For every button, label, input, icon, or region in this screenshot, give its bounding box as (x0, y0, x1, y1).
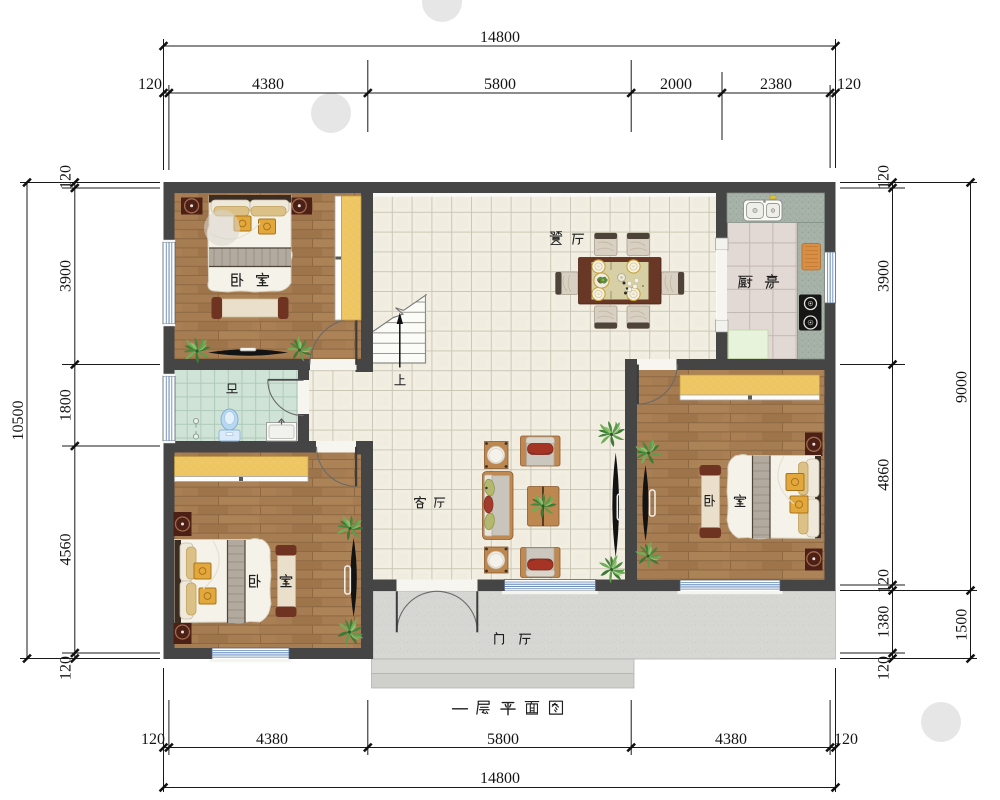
svg-text:120: 120 (876, 656, 893, 680)
svg-text:120: 120 (58, 656, 75, 680)
svg-text:14800: 14800 (480, 770, 520, 787)
svg-text:4560: 4560 (58, 534, 75, 566)
svg-text:4380: 4380 (256, 731, 288, 748)
svg-text:120: 120 (876, 165, 893, 189)
svg-text:3900: 3900 (876, 260, 893, 292)
svg-text:2000: 2000 (660, 76, 692, 93)
svg-text:4380: 4380 (715, 731, 747, 748)
svg-text:3900: 3900 (58, 260, 75, 292)
svg-text:120: 120 (876, 569, 893, 593)
svg-text:1380: 1380 (876, 606, 893, 638)
svg-text:10500: 10500 (10, 401, 27, 441)
svg-text:120: 120 (141, 731, 165, 748)
svg-text:120: 120 (834, 731, 858, 748)
svg-text:120: 120 (138, 76, 162, 93)
svg-text:14800: 14800 (480, 29, 520, 46)
svg-text:4860: 4860 (876, 459, 893, 491)
svg-text:120: 120 (58, 165, 75, 189)
svg-text:4380: 4380 (252, 76, 284, 93)
svg-text:5800: 5800 (484, 76, 516, 93)
svg-text:1800: 1800 (58, 389, 75, 421)
svg-text:2380: 2380 (760, 76, 792, 93)
svg-text:9000: 9000 (954, 371, 971, 403)
svg-text:1500: 1500 (954, 609, 971, 641)
svg-text:120: 120 (837, 76, 861, 93)
svg-text:5800: 5800 (487, 731, 519, 748)
